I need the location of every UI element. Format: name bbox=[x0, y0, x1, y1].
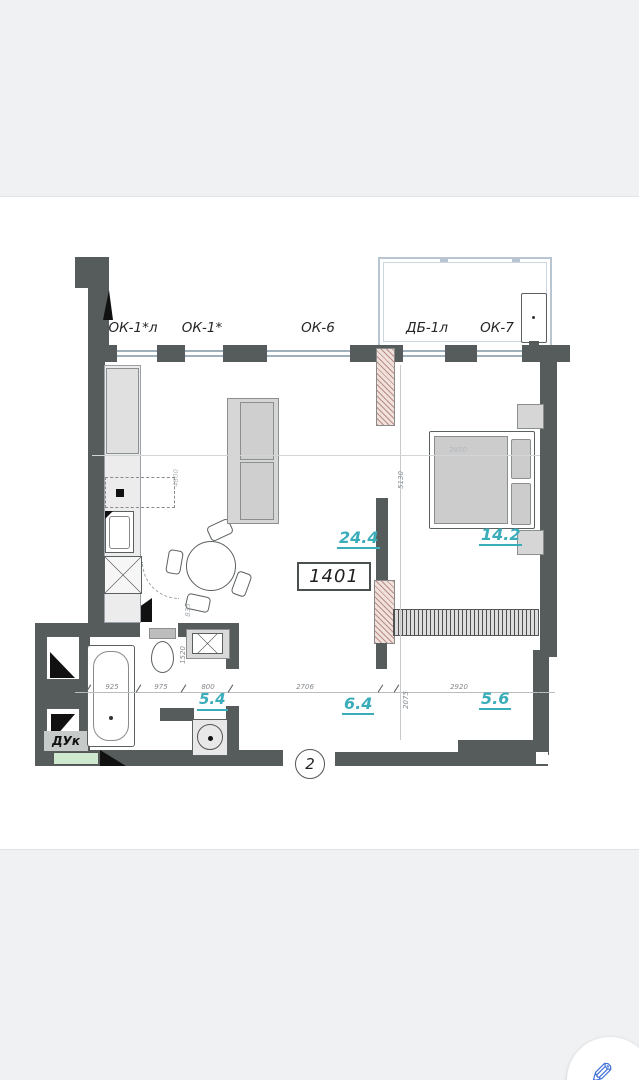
bathroom-sink bbox=[192, 633, 223, 654]
bathtub-inner bbox=[93, 651, 129, 741]
wall-right bbox=[540, 345, 557, 657]
duct-vent-strip bbox=[53, 752, 99, 765]
window-label-ok1: ОК-1* bbox=[170, 320, 234, 336]
duct-label: ДУк bbox=[44, 731, 88, 751]
wall-notch bbox=[536, 752, 548, 764]
toilet-bowl bbox=[151, 641, 174, 673]
washing-machine-dot bbox=[208, 736, 213, 741]
dim-text-vertical: 1520 bbox=[178, 635, 188, 675]
balcony-tick bbox=[512, 257, 520, 262]
dim-text: 925 bbox=[98, 683, 126, 691]
balcony-door-db1l bbox=[403, 345, 445, 362]
wall-bottom bbox=[335, 752, 461, 766]
fridge bbox=[106, 368, 139, 454]
dimension-line-bed bbox=[92, 455, 540, 456]
nightstand bbox=[517, 404, 544, 429]
dim-text: 2706 bbox=[289, 683, 321, 691]
pillow bbox=[511, 439, 531, 479]
wall bbox=[223, 345, 267, 362]
app-screen: ДУк bbox=[0, 0, 639, 1080]
dim-text-vertical: 835 bbox=[183, 590, 193, 630]
toilet-tank bbox=[149, 628, 176, 639]
wall-bottom-step bbox=[458, 740, 548, 766]
balcony-tick bbox=[440, 257, 448, 262]
dim-text: 975 bbox=[147, 683, 175, 691]
dim-text-vertical: 4800 bbox=[171, 458, 181, 498]
window-label-ok1l: ОК-1*л bbox=[96, 320, 170, 336]
kitchen-sink-bowl bbox=[109, 516, 130, 549]
sofa-cushion bbox=[240, 402, 274, 460]
wall bbox=[88, 345, 117, 362]
hob-crossed-box bbox=[104, 556, 142, 594]
wardrobe bbox=[393, 609, 539, 636]
edit-fab-button[interactable]: ✎ bbox=[567, 1037, 639, 1080]
area-hall: 5.6 bbox=[479, 690, 511, 710]
vent-shaft-hatched bbox=[376, 348, 395, 426]
hob-dot bbox=[116, 489, 124, 497]
wall-bathroom-top bbox=[90, 623, 140, 637]
window-ok6 bbox=[267, 345, 350, 362]
unit-number-box: 1401 bbox=[297, 562, 371, 591]
ac-unit-dot bbox=[532, 316, 535, 319]
window-ok1 bbox=[185, 345, 223, 362]
window-label-ok7: ОК-7 bbox=[468, 320, 526, 336]
pencil-icon: ✎ bbox=[589, 1057, 614, 1080]
vent-shaft-hatched bbox=[374, 580, 395, 644]
sheet-number-circle: 2 bbox=[295, 749, 325, 779]
area-bathroom: 5.4 bbox=[197, 691, 228, 711]
area-bedroom: 14.2 bbox=[479, 526, 522, 546]
wall-left bbox=[88, 362, 105, 628]
wall-divider bbox=[376, 643, 387, 669]
wall bbox=[445, 345, 477, 362]
dim-text: 2850 bbox=[442, 446, 474, 454]
dim-text-vertical: 2075 bbox=[401, 680, 411, 720]
window-ok1l bbox=[117, 345, 157, 362]
dim-text-vertical: 5130 bbox=[396, 460, 406, 500]
window-ok7 bbox=[477, 345, 522, 362]
wall-washer-niche bbox=[160, 708, 194, 721]
pillow bbox=[511, 483, 531, 525]
window-label-db1l: ДБ-1л bbox=[394, 320, 460, 336]
dim-text: 2920 bbox=[443, 683, 475, 691]
area-hallway: 6.4 bbox=[342, 695, 374, 715]
sofa-cushion bbox=[240, 462, 274, 520]
wall bbox=[157, 345, 185, 362]
bathtub-drain bbox=[109, 716, 113, 720]
area-kitchen-living: 24.4 bbox=[337, 529, 380, 549]
dining-table bbox=[186, 541, 236, 591]
window-label-ok6: ОК-6 bbox=[292, 320, 344, 336]
